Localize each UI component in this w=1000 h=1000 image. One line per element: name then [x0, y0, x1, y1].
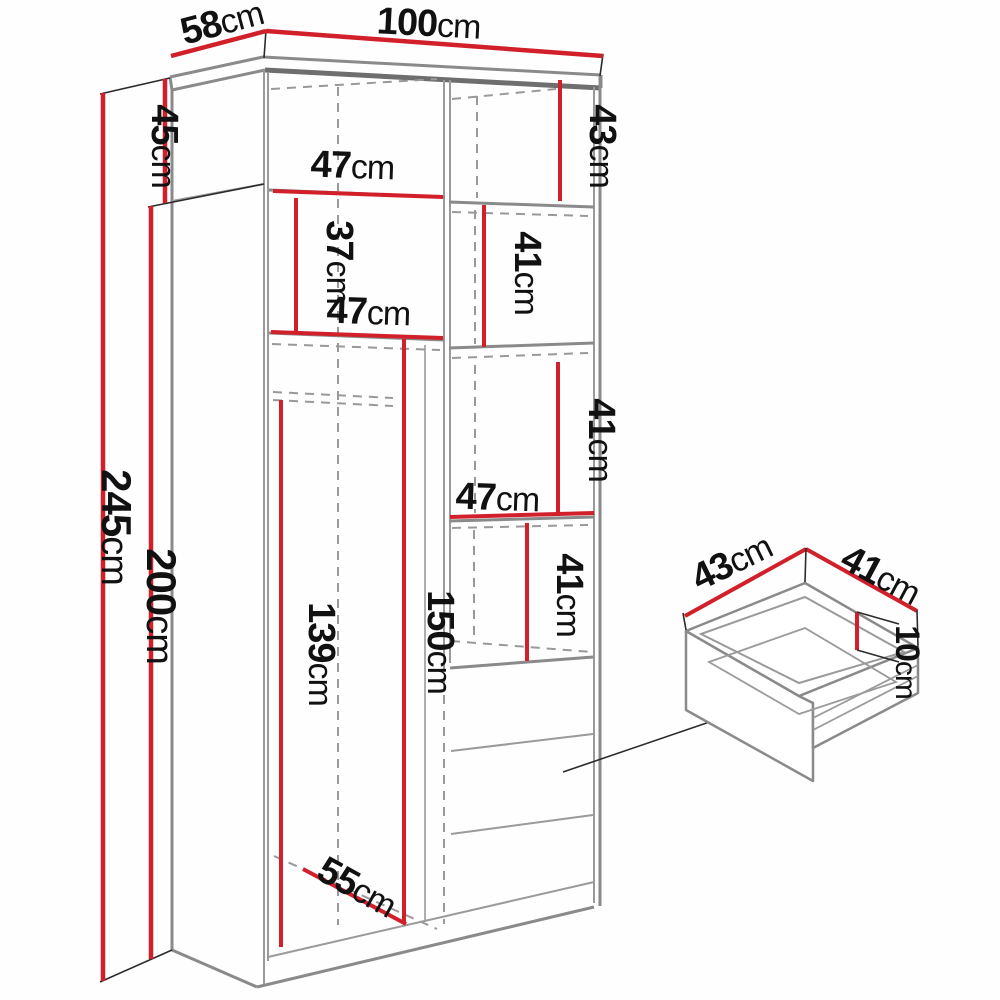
top-panel — [170, 57, 601, 90]
front-frame — [257, 72, 600, 987]
label-47-top: 47cm — [310, 144, 395, 189]
drawer-divider — [451, 815, 593, 834]
dimension-labels: 58cm 100cm 45cm 245cm 200cm 43cm 47cm 37… — [93, 0, 927, 926]
extension-line — [100, 950, 172, 982]
label-150: 150cm — [419, 590, 461, 694]
label-body-height: 200cm — [138, 548, 185, 664]
extension-line — [264, 30, 266, 58]
label-55: 55cm — [310, 849, 403, 926]
pointer-line — [563, 716, 727, 772]
shelf-line — [449, 343, 594, 348]
shelf-back-edge — [452, 212, 588, 216]
label-width: 100cm — [376, 0, 482, 47]
label-47-mid: 47cm — [326, 290, 411, 335]
shelf-back-edge — [452, 525, 588, 528]
drawer-stack — [450, 657, 593, 834]
label-41-2: 41cm — [580, 398, 622, 482]
center-divider — [425, 80, 450, 924]
shelf-back-edge — [272, 344, 440, 350]
label-41-1: 41cm — [506, 231, 548, 315]
floor-back-edge-right — [451, 641, 592, 652]
label-shelf-43: 43cm — [581, 104, 623, 188]
dim-line-47-top — [273, 191, 443, 197]
label-total-height: 245cm — [93, 469, 140, 585]
drawer-divider — [451, 734, 593, 751]
diagram-canvas: 58cm 100cm 45cm 245cm 200cm 43cm 47cm 37… — [0, 0, 1000, 1000]
shelf-line — [449, 202, 594, 207]
label-47-right: 47cm — [455, 476, 540, 521]
label-top-section-height: 45cm — [143, 104, 185, 188]
hanging-rod-line — [273, 392, 393, 398]
extension-line — [805, 548, 806, 582]
extension-line — [100, 78, 170, 94]
wardrobe-dimension-diagram: 58cm 100cm 45cm 245cm 200cm 43cm 47cm 37… — [0, 0, 1000, 1000]
interior-ceiling-right — [452, 89, 556, 99]
label-41-3: 41cm — [548, 553, 590, 637]
label-drawer-height: 10cm — [888, 625, 926, 699]
hanging-rod-line — [273, 400, 393, 406]
top-panel-left-cap — [170, 77, 172, 90]
left-side-panel — [172, 70, 264, 987]
label-139: 139cm — [300, 602, 342, 706]
drawer-top-edge — [450, 657, 593, 668]
interior-ceiling-left — [271, 79, 437, 89]
label-depth: 58cm — [176, 0, 268, 54]
side-bottom-edge — [172, 950, 257, 987]
label-drawer-width: 41cm — [834, 537, 928, 613]
shelf-back-edge — [452, 353, 588, 358]
